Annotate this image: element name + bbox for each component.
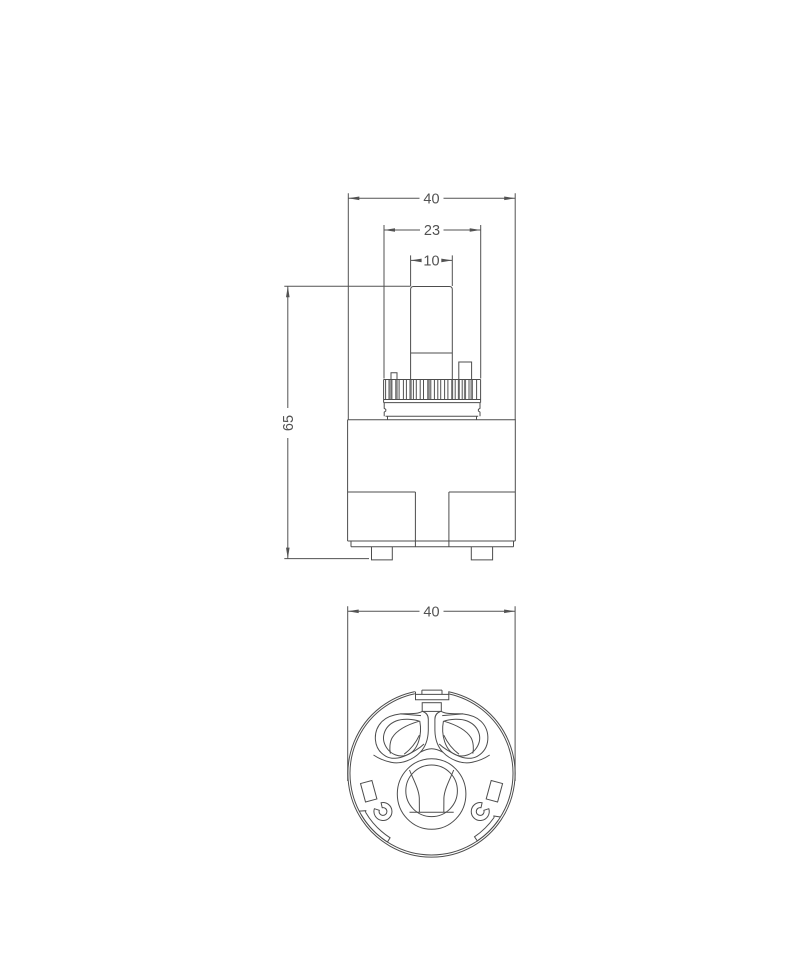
svg-text:40: 40 — [423, 191, 439, 207]
svg-text:65: 65 — [281, 415, 297, 431]
svg-text:23: 23 — [424, 223, 440, 239]
svg-text:40: 40 — [423, 604, 439, 620]
svg-text:10: 10 — [423, 253, 439, 269]
